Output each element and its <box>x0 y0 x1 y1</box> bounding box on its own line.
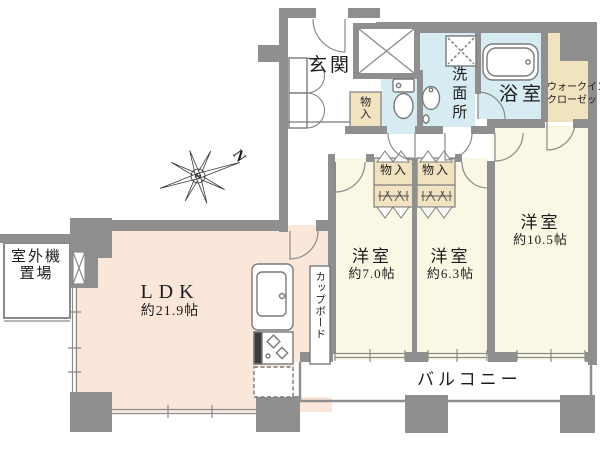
floor-plan: 玄関 物入 洗面所 浴室 ウォークイン クローゼット 物入 物入 洋室 約7.0… <box>0 0 600 450</box>
closet-b-label: 物入 <box>418 164 454 178</box>
bathtub-icon <box>483 44 538 80</box>
ldk-labels: LDK 約21.9帖 <box>116 281 224 320</box>
refrigerator-space <box>254 367 293 397</box>
ldk-name: LDK <box>116 281 224 304</box>
bedroom3-labels: 洋室 約10.5帖 <box>493 213 588 247</box>
bedroom1-name: 洋室 <box>331 247 413 267</box>
stove-icon <box>254 332 293 364</box>
entrance-storage-label: 物入 <box>358 96 371 120</box>
bedroom2-labels: 洋室 約6.3帖 <box>413 247 488 281</box>
washing-machine-pan-icon <box>446 36 476 66</box>
bedroom3-name: 洋室 <box>493 213 588 233</box>
bedroom2-size: 約6.3帖 <box>413 267 488 282</box>
outdoor-unit-labels: 室外機 置場 <box>5 249 68 284</box>
outdoor-unit-line1: 室外機 <box>5 249 68 266</box>
outdoor-unit-line2: 置場 <box>5 266 68 283</box>
bedroom2-name: 洋室 <box>413 247 488 267</box>
bedroom1-labels: 洋室 約7.0帖 <box>331 247 413 281</box>
bedroom3-size: 約10.5帖 <box>493 233 588 248</box>
ldk-size: 約21.9帖 <box>116 304 224 320</box>
window-fix-west <box>73 252 85 284</box>
bathroom-label: 浴室 <box>499 84 545 106</box>
cupboard-label: カップボード <box>313 271 325 340</box>
wic-label-line2: クローゼット <box>547 95 600 107</box>
crossed-shaft-icon <box>356 26 417 76</box>
washroom-label: 洗面所 <box>449 66 466 123</box>
toilet-icon <box>393 79 414 119</box>
kitchen-sink-icon <box>252 264 293 330</box>
compass-icon <box>146 123 252 227</box>
wic-label-line1: ウォークイン <box>547 82 600 94</box>
closet-a-label: 物入 <box>376 164 412 178</box>
balcony-label: バルコニー <box>417 370 522 390</box>
bedroom1-size: 約7.0帖 <box>331 267 413 282</box>
genkan-label: 玄関 <box>308 55 352 77</box>
